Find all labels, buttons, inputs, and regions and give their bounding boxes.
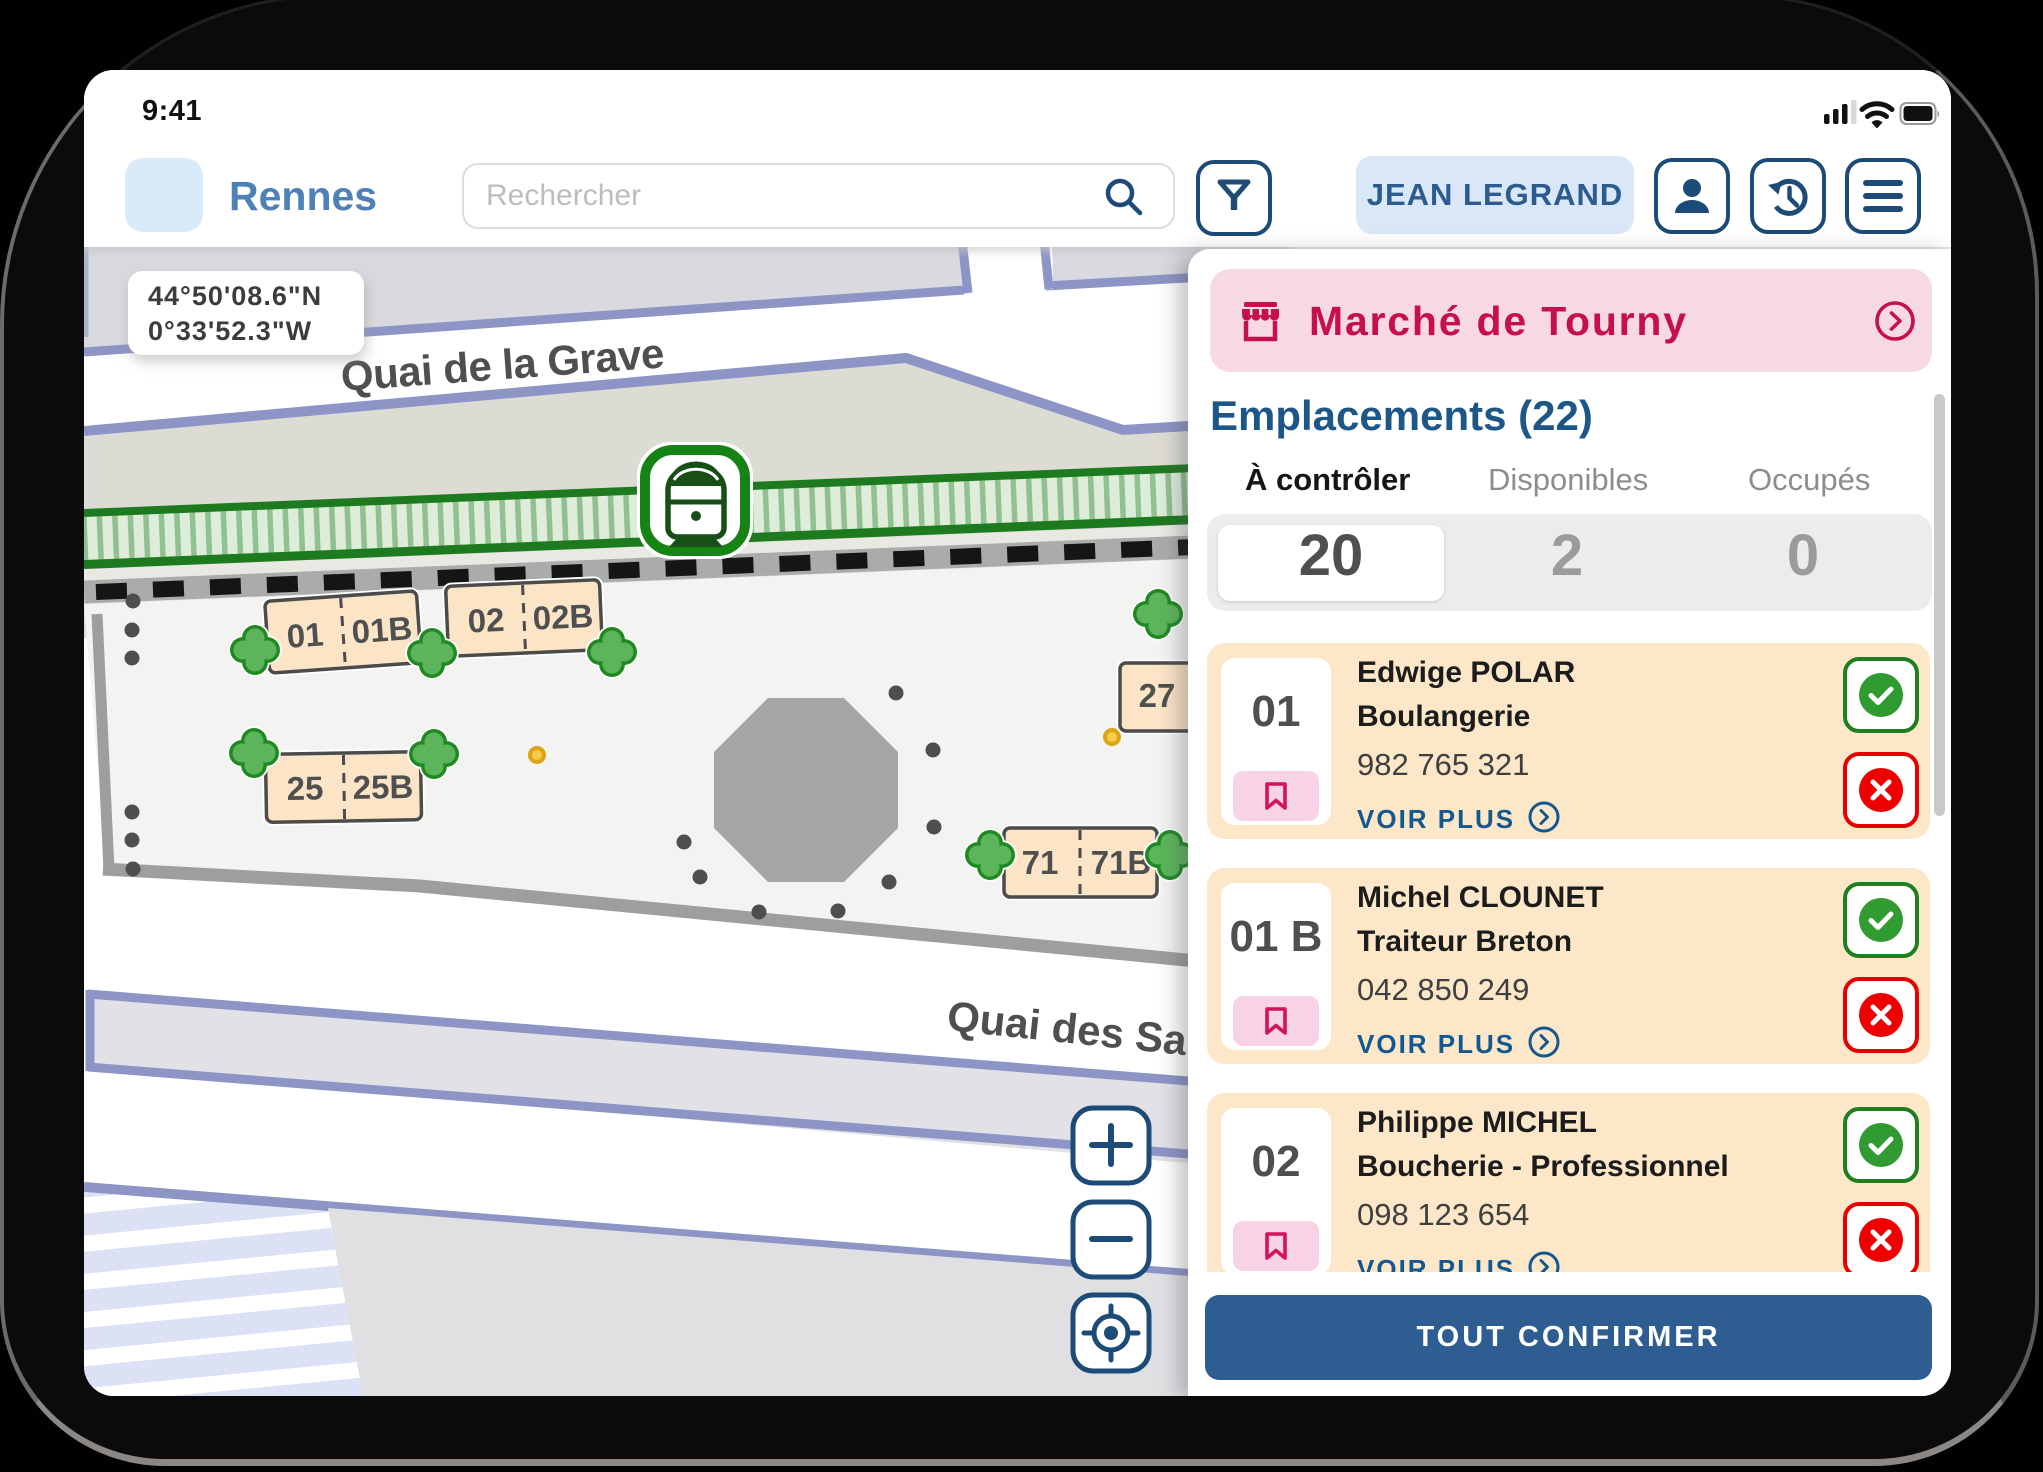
svg-text:02B: 02B [532,597,594,637]
svg-text:02: 02 [467,601,505,640]
svg-text:44°50'08.6"N: 44°50'08.6"N [148,281,322,311]
svg-text:27: 27 [1139,677,1176,714]
svg-text:71B: 71B [1091,844,1152,881]
svg-text:01: 01 [286,615,325,654]
svg-text:25B: 25B [352,768,413,806]
svg-text:01B: 01B [350,609,413,650]
svg-text:0°33'52.3"W: 0°33'52.3"W [148,316,312,346]
svg-text:71: 71 [1022,844,1059,881]
svg-text:25: 25 [286,769,323,807]
